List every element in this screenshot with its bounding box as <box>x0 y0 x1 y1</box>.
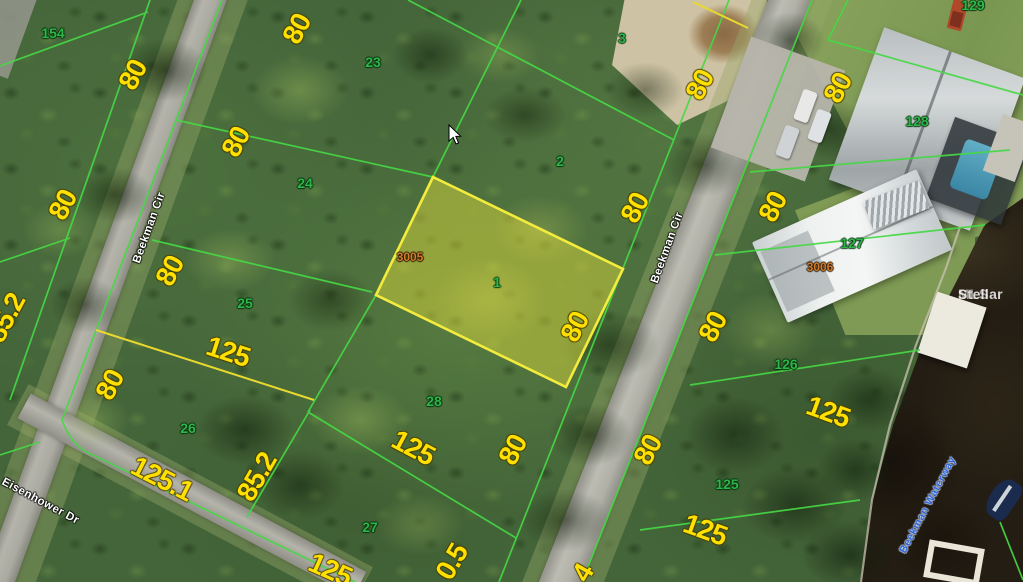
aerial-parcel-map[interactable]: 808085.2808080125125.185.21251250.548080… <box>0 0 1023 582</box>
watermark-secondary: MLS <box>958 286 988 302</box>
mouse-cursor <box>448 124 464 146</box>
